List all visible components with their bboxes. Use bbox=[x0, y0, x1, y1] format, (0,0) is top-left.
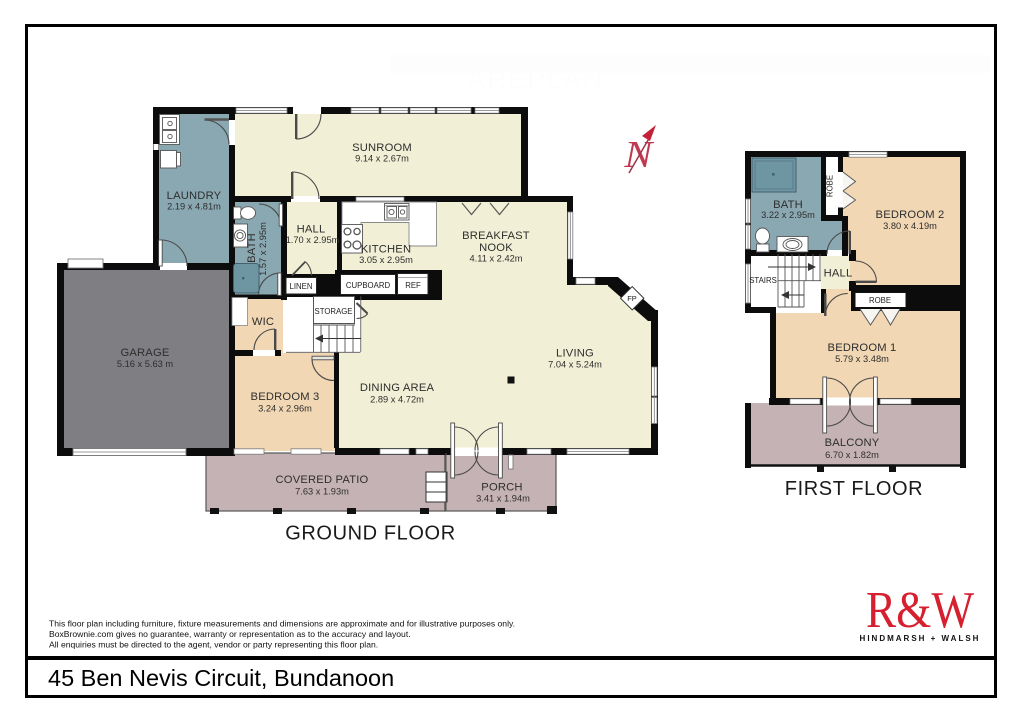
svg-text:3.05 x 2.95m: 3.05 x 2.95m bbox=[359, 255, 413, 265]
svg-text:2.19 x 4.81m: 2.19 x 4.81m bbox=[167, 202, 221, 212]
svg-text:LINEN: LINEN bbox=[290, 282, 313, 291]
svg-text:HALL: HALL bbox=[824, 268, 853, 280]
svg-text:3.22 x 2.95m: 3.22 x 2.95m bbox=[761, 210, 815, 220]
svg-text:BoxBrownie.com gives no guaran: BoxBrownie.com gives no guarantee, warra… bbox=[49, 629, 411, 639]
svg-text:GARAGE: GARAGE bbox=[120, 347, 169, 359]
svg-text:7.63 x 1.93m: 7.63 x 1.93m bbox=[295, 487, 349, 497]
svg-text:This floor plan including furn: This floor plan including furniture, fix… bbox=[49, 619, 515, 629]
svg-text:FIRST FLOOR: FIRST FLOOR bbox=[785, 478, 923, 500]
svg-text:BEDROOM 2: BEDROOM 2 bbox=[876, 209, 945, 221]
svg-text:5.79 x 3.48m: 5.79 x 3.48m bbox=[835, 354, 889, 364]
svg-text:SUNROOM: SUNROOM bbox=[352, 142, 412, 154]
svg-text:WIC: WIC bbox=[252, 316, 274, 328]
svg-text:BATH: BATH bbox=[246, 233, 258, 263]
svg-text:9.14 x 2.67m: 9.14 x 2.67m bbox=[355, 154, 409, 164]
svg-text:2.89 x 4.72m: 2.89 x 4.72m bbox=[370, 395, 424, 405]
svg-text:5.16 x 5.63 m: 5.16 x 5.63 m bbox=[117, 359, 174, 369]
svg-text:7.04 x 5.24m: 7.04 x 5.24m bbox=[548, 360, 602, 370]
svg-text:ROBE: ROBE bbox=[869, 296, 891, 305]
svg-text:1.70 x 2.95m: 1.70 x 2.95m bbox=[286, 235, 340, 245]
svg-text:STAIRS: STAIRS bbox=[749, 276, 777, 285]
svg-text:FP: FP bbox=[627, 294, 637, 303]
svg-text:All enquiries must be directed: All enquiries must be directed to the ag… bbox=[49, 640, 378, 650]
svg-text:KITCHEN: KITCHEN bbox=[361, 244, 412, 256]
svg-text:3.24 x 2.96m: 3.24 x 2.96m bbox=[258, 404, 312, 414]
svg-text:REF: REF bbox=[405, 281, 421, 290]
svg-text:DINING AREA: DINING AREA bbox=[360, 382, 435, 394]
svg-text:PORCH: PORCH bbox=[481, 482, 522, 494]
svg-text:CUPBOARD: CUPBOARD bbox=[346, 281, 391, 290]
svg-text:BEDROOM 3: BEDROOM 3 bbox=[251, 391, 320, 403]
svg-text:LAUNDRY: LAUNDRY bbox=[167, 190, 222, 202]
svg-text:R&W: R&W bbox=[866, 582, 974, 639]
svg-text:BALCONY: BALCONY bbox=[825, 437, 880, 449]
svg-text:BEDROOM 1: BEDROOM 1 bbox=[828, 342, 897, 354]
svg-text:3.41 x 1.94m: 3.41 x 1.94m bbox=[476, 494, 530, 504]
svg-text:1.57 x 2.95m: 1.57 x 2.95m bbox=[258, 222, 268, 276]
svg-text:COVERED PATIO: COVERED PATIO bbox=[276, 474, 369, 486]
svg-text:ROBE: ROBE bbox=[826, 175, 835, 197]
svg-text:STORAGE: STORAGE bbox=[315, 307, 353, 316]
svg-text:HALL: HALL bbox=[297, 224, 326, 236]
svg-text:GROUND FLOOR: GROUND FLOOR bbox=[285, 523, 456, 545]
svg-text:AREPLAN: AREPLAN bbox=[468, 64, 603, 94]
svg-text:45 Ben Nevis Circuit, Bundanoo: 45 Ben Nevis Circuit, Bundanoon bbox=[48, 665, 394, 691]
svg-text:NOOK: NOOK bbox=[479, 242, 513, 254]
svg-text:4.11 x 2.42m: 4.11 x 2.42m bbox=[469, 254, 522, 264]
svg-text:LIVING: LIVING bbox=[556, 348, 594, 360]
svg-text:HINDMARSH + WALSH: HINDMARSH + WALSH bbox=[860, 634, 981, 643]
svg-text:BREAKFAST: BREAKFAST bbox=[462, 230, 530, 242]
svg-text:6.70 x 1.82m: 6.70 x 1.82m bbox=[825, 450, 879, 460]
svg-text:3.80 x 4.19m: 3.80 x 4.19m bbox=[883, 221, 937, 231]
